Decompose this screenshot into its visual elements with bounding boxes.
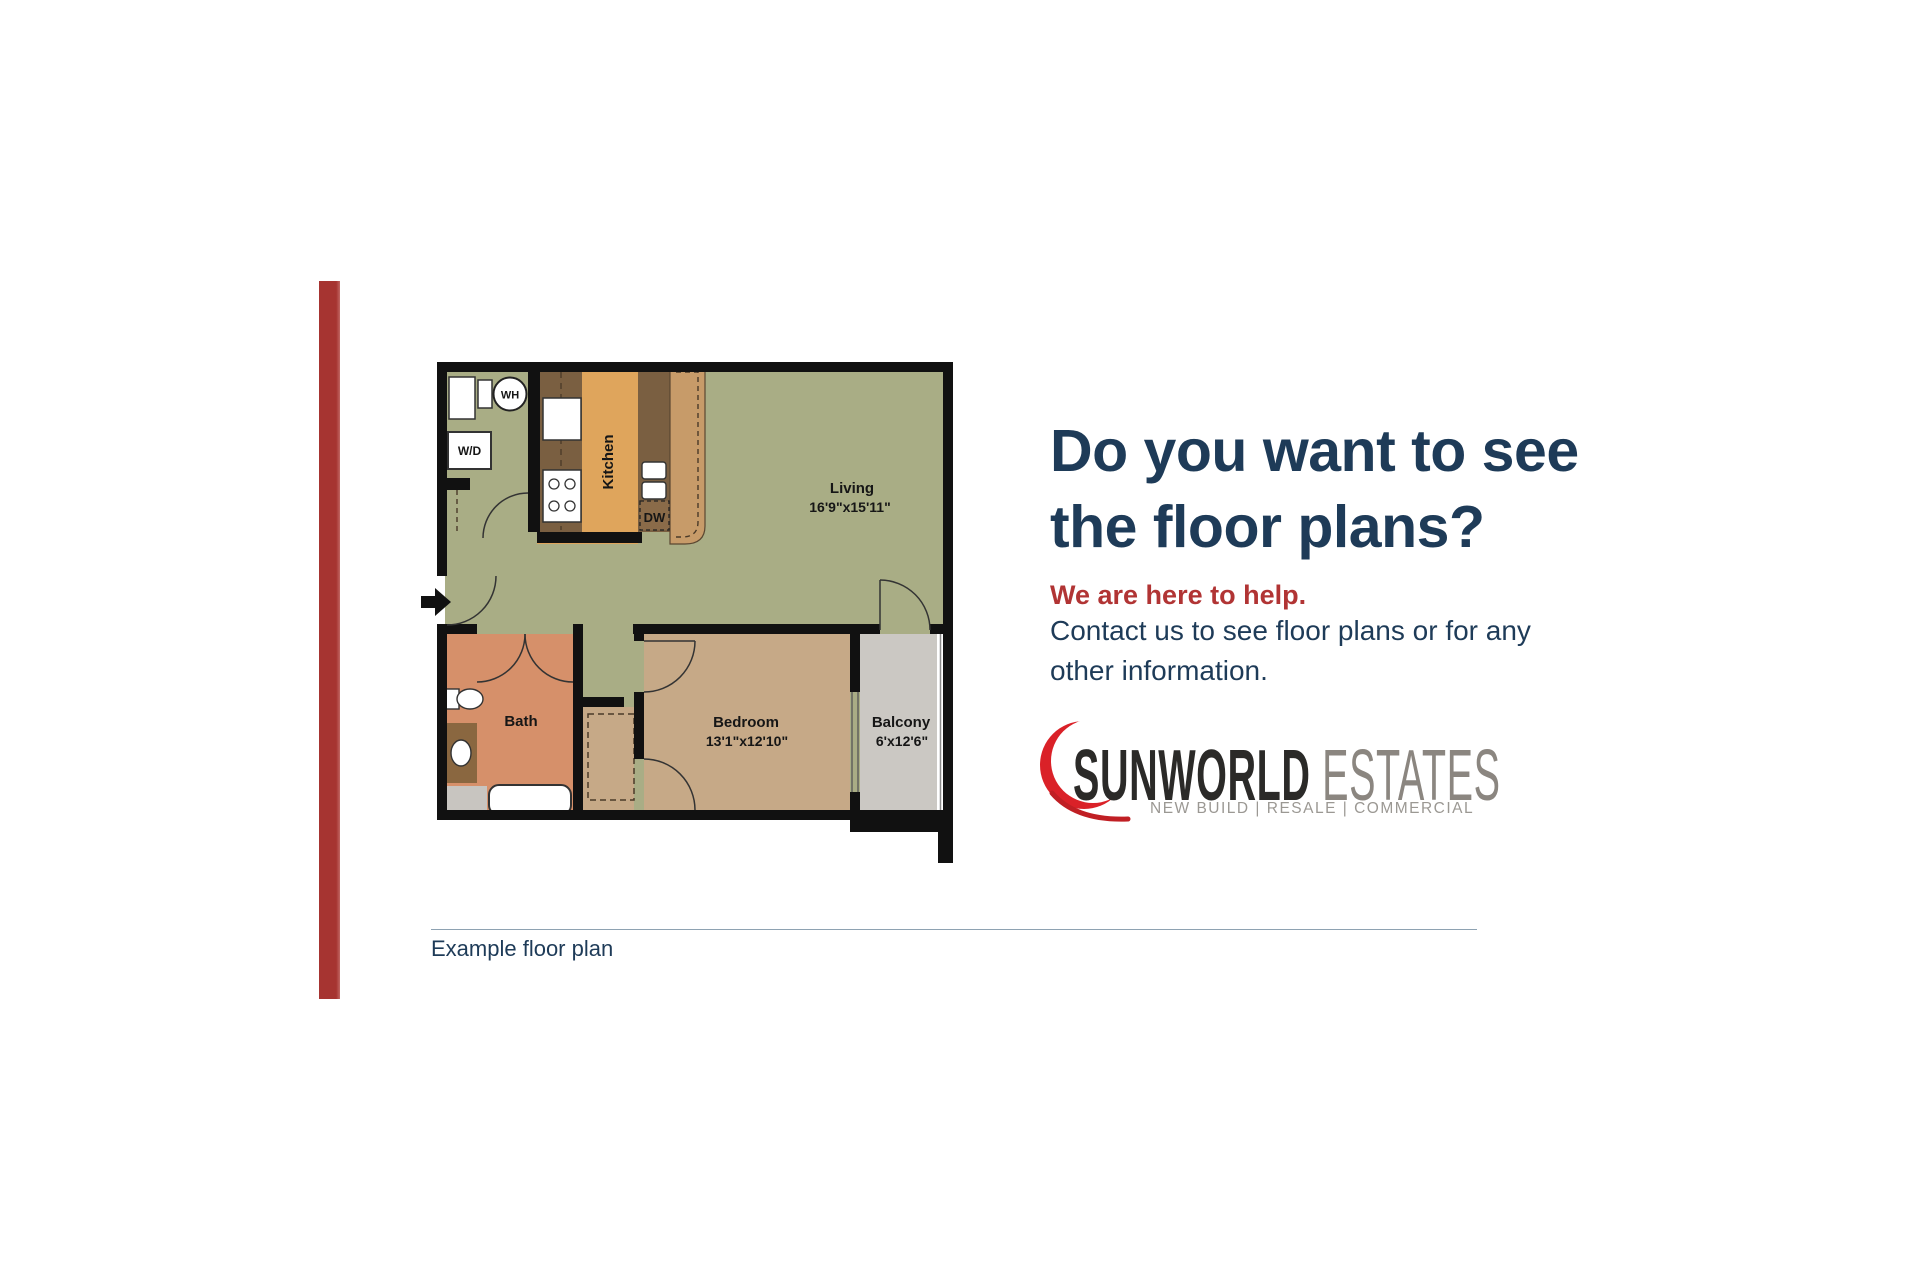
water-heater-label: WH bbox=[501, 390, 519, 402]
headline: Do you want to see the floor plans? bbox=[1050, 413, 1650, 565]
fridge bbox=[543, 398, 581, 440]
body-line2: other information. bbox=[1050, 651, 1610, 691]
body-text: Contact us to see floor plans or for any… bbox=[1050, 611, 1610, 691]
bath-corner-pad bbox=[445, 786, 487, 810]
kitchen-island-counter bbox=[670, 370, 705, 544]
logo-tagline: NEW BUILD | RESALE | COMMERCIAL bbox=[1150, 800, 1474, 818]
floor-plan-figure: WH W/D DW bbox=[415, 362, 953, 864]
bath-label: Bath bbox=[504, 713, 537, 730]
caption: Example floor plan bbox=[431, 936, 613, 962]
closet-floor bbox=[583, 707, 634, 810]
burner bbox=[549, 501, 559, 511]
accent-bar bbox=[319, 281, 340, 999]
living-label: Living bbox=[830, 480, 874, 497]
toilet-bowl bbox=[457, 689, 483, 709]
headline-line1: Do you want to see bbox=[1050, 413, 1650, 489]
slide: WH W/D DW bbox=[0, 0, 1920, 1280]
balcony-label: Balcony bbox=[872, 714, 931, 731]
dishwasher-label: DW bbox=[644, 510, 666, 525]
dryer-box bbox=[478, 380, 492, 408]
kitchen-sink-basin bbox=[642, 482, 666, 499]
divider-line bbox=[431, 929, 1477, 930]
balcony-dims: 6'x12'6" bbox=[876, 733, 928, 749]
vanity-sink bbox=[451, 740, 471, 766]
burner bbox=[565, 501, 575, 511]
bedroom-dims: 13'1"x12'10" bbox=[706, 733, 788, 749]
company-logo: SUNWORLD ESTATES NEW BUILD | RESALE | CO… bbox=[1040, 719, 1540, 829]
living-dims: 16'9"x15'11" bbox=[809, 499, 890, 515]
kitchen-sink-basin bbox=[642, 462, 666, 479]
burner bbox=[549, 479, 559, 489]
bedroom-label: Bedroom bbox=[713, 714, 779, 731]
headline-line2: the floor plans? bbox=[1050, 489, 1650, 565]
washer-box bbox=[449, 377, 475, 419]
burner bbox=[565, 479, 575, 489]
washer-dryer-label: W/D bbox=[458, 444, 482, 458]
subheadline: We are here to help. bbox=[1050, 580, 1650, 611]
body-line1: Contact us to see floor plans or for any bbox=[1050, 611, 1610, 651]
kitchen-label: Kitchen bbox=[600, 434, 617, 489]
stove bbox=[543, 470, 581, 522]
